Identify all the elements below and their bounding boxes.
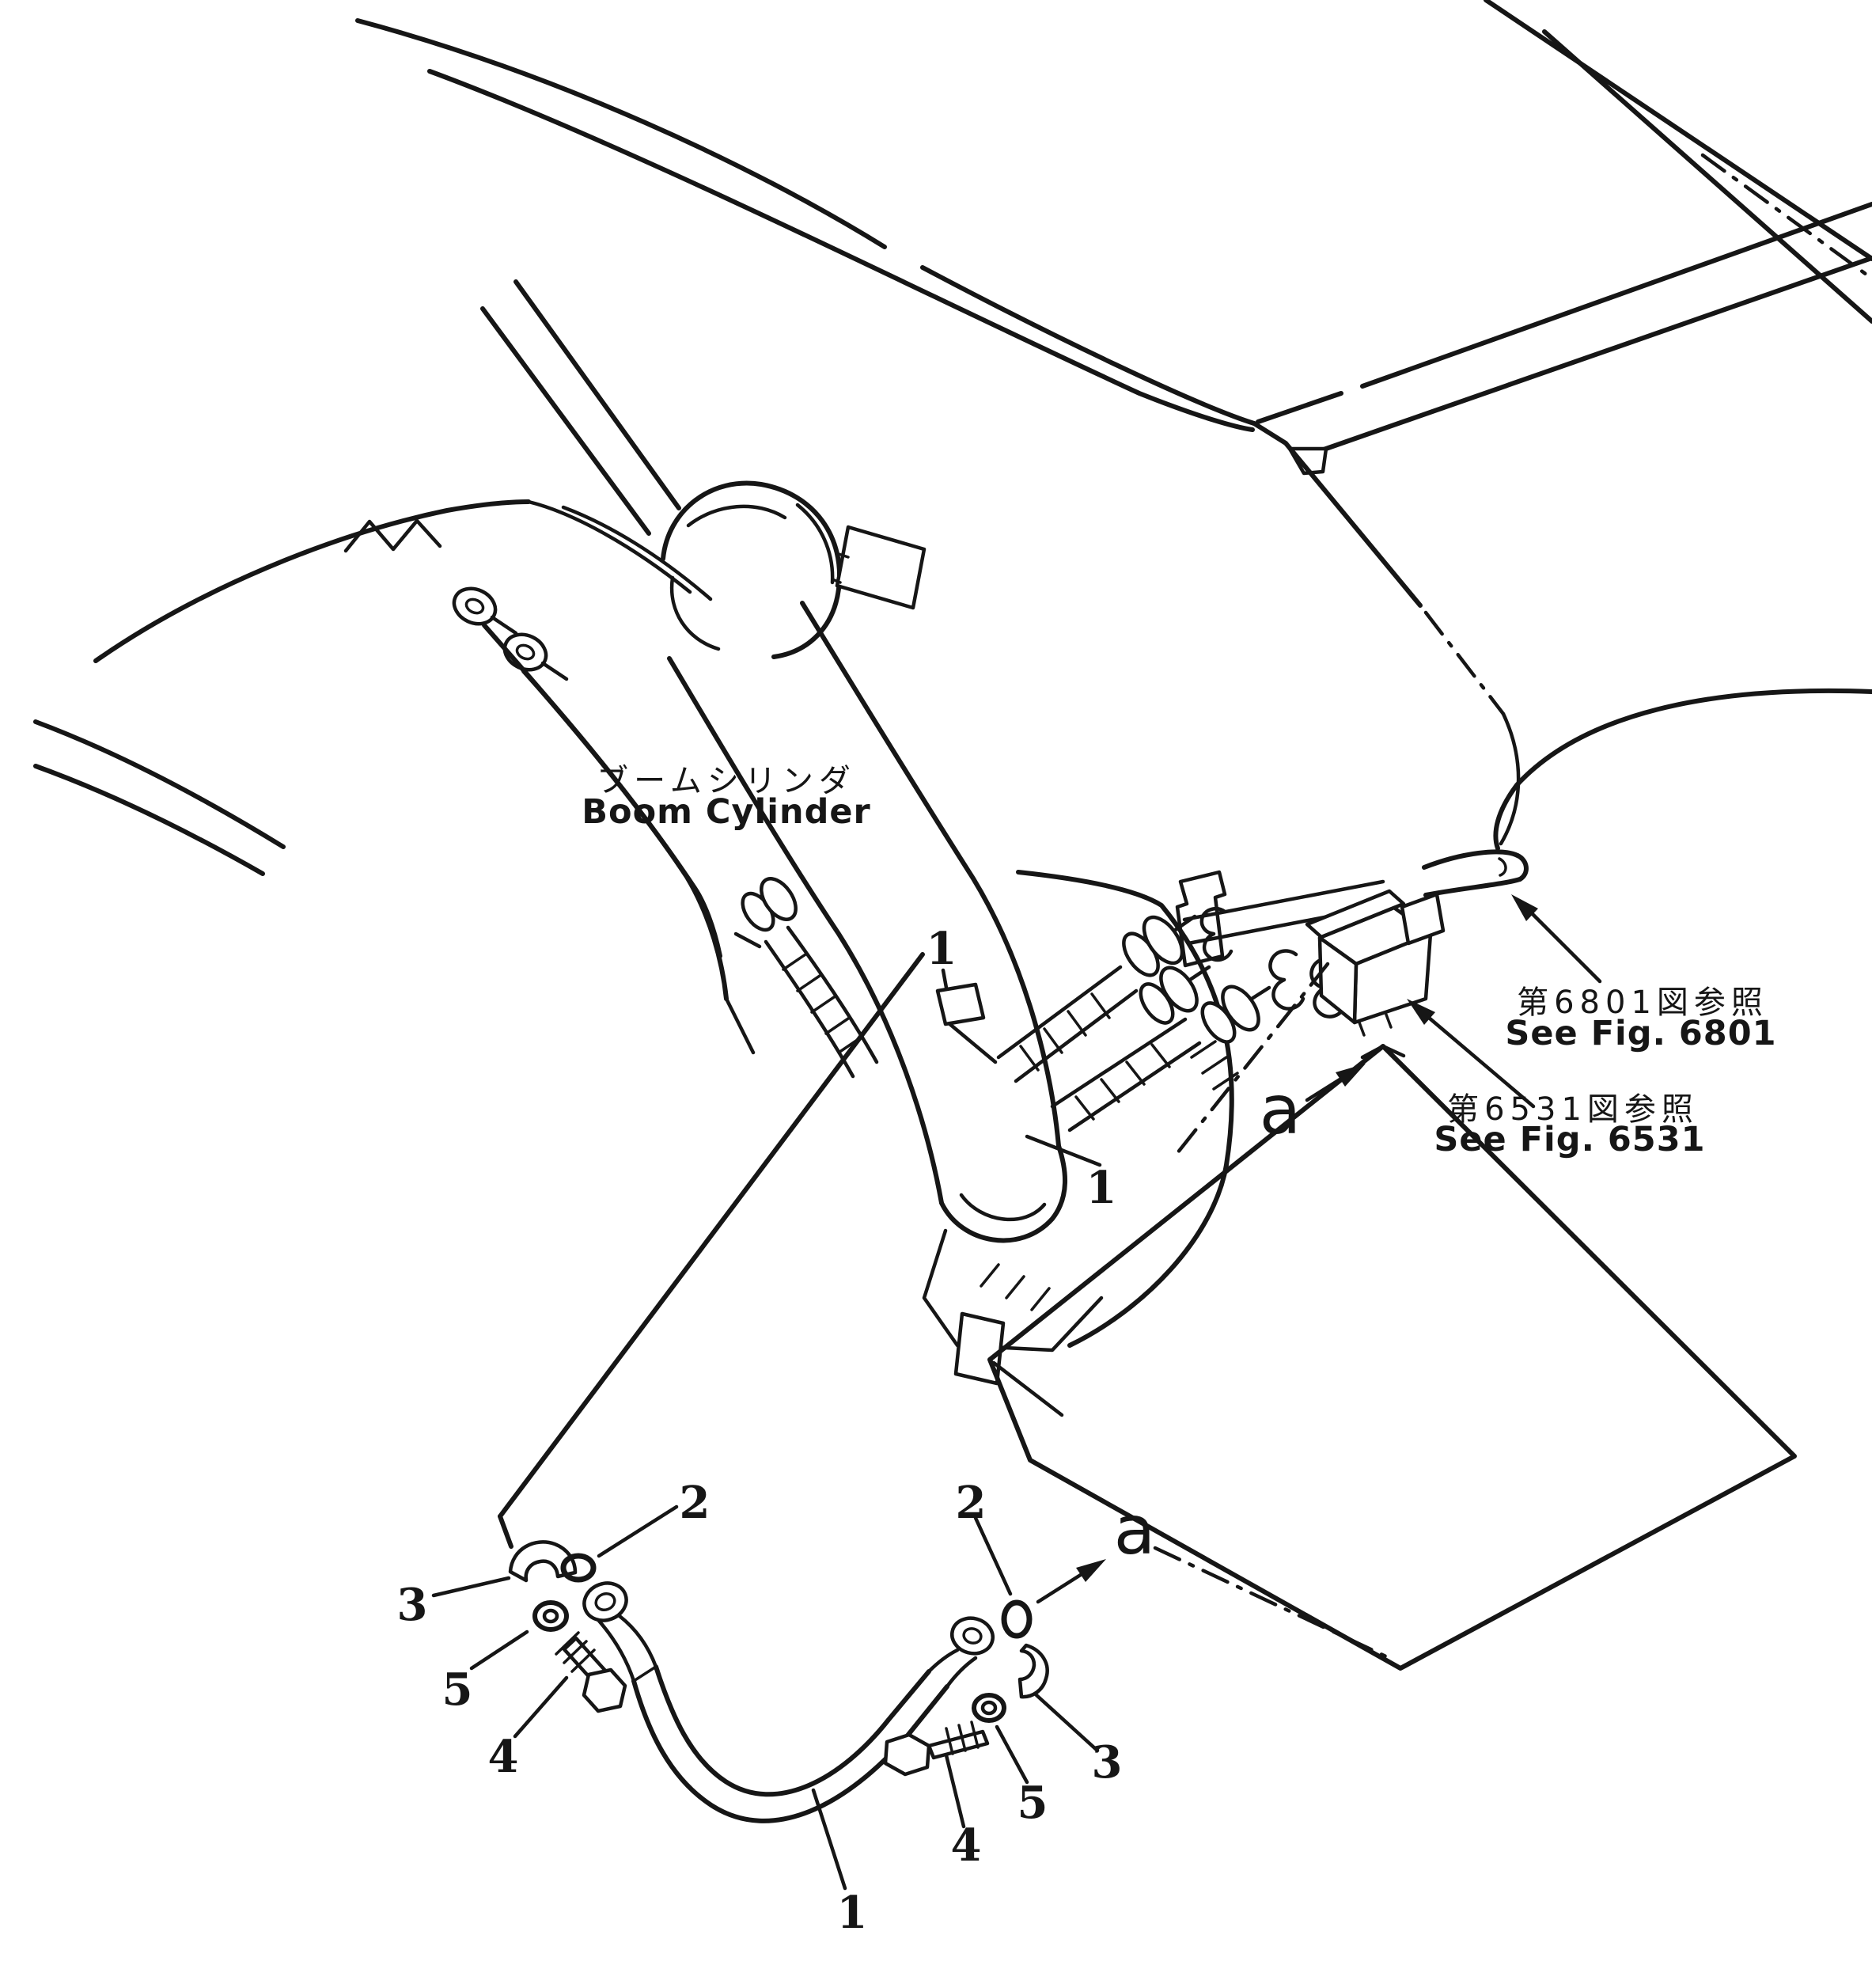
clamp-part3: [1020, 1645, 1048, 1697]
cylinder-head-port-block: [837, 527, 924, 608]
ref-fig6531-en: See Fig. 6531: [1434, 1120, 1705, 1159]
washer-part5: [535, 1603, 567, 1629]
parts-diagram-canvas: ブームシリンダ Boom Cylinder 第6801図参照 See Fig. …: [0, 0, 1872, 1988]
hose-tag: [938, 985, 983, 1024]
callout-part5-left: 5: [442, 1664, 473, 1716]
cylinder-rod-edge: [483, 309, 649, 533]
catalog-page: ブームシリンダ Boom Cylinder 第6801図参照 See Fig. …: [0, 0, 1872, 1988]
callout-part2-left: 2: [680, 1477, 711, 1529]
washer-part5: [974, 1695, 1004, 1721]
callout-part5-right: 5: [1017, 1777, 1048, 1829]
cylinder-rod-edge: [516, 282, 679, 508]
bolt-part4: [885, 1722, 987, 1774]
hydraulic-hoses: [449, 582, 1526, 1130]
section-marker-a-upper: a: [1260, 1071, 1302, 1150]
machine-body-outline: [36, 0, 1872, 1546]
ref-fig6801-en: See Fig. 6801: [1505, 1014, 1776, 1053]
section-line-lower: [1155, 1548, 1391, 1659]
exploded-group-right: [885, 1603, 1048, 1774]
callout-leaders: [434, 970, 1100, 1888]
callout-part1-upper: 1: [927, 923, 957, 975]
head-elbow-fitting: [449, 582, 502, 631]
diagram-labels: ブームシリンダ Boom Cylinder 第6801図参照 See Fig. …: [397, 763, 1777, 1939]
callout-part3-left: 3: [397, 1579, 428, 1631]
callout-part3-right: 3: [1092, 1736, 1123, 1789]
hose-elbow-fitting: [929, 1614, 997, 1686]
callout-part4-left: 4: [488, 1731, 519, 1783]
boom-cylinder-label-en: Boom Cylinder: [582, 792, 870, 832]
boom-cylinder-drawing: [483, 282, 1101, 1383]
callout-part4-right: 4: [951, 1819, 982, 1872]
section-marker-a-lower: a: [1114, 1491, 1156, 1570]
arrowhead-section-a-lower: [1076, 1559, 1106, 1582]
callout-part2-right: 2: [956, 1477, 987, 1529]
hose-to-fig6801: [1424, 852, 1526, 895]
callout-part1-mid: 1: [1086, 1162, 1117, 1214]
cylinder-bottom-cap: [942, 1146, 1065, 1240]
hose-clamp-half: [1270, 951, 1303, 1009]
oring-part2: [563, 1556, 593, 1580]
callout-part1-bottom: 1: [837, 1887, 868, 1939]
oring-part2: [1004, 1603, 1029, 1636]
